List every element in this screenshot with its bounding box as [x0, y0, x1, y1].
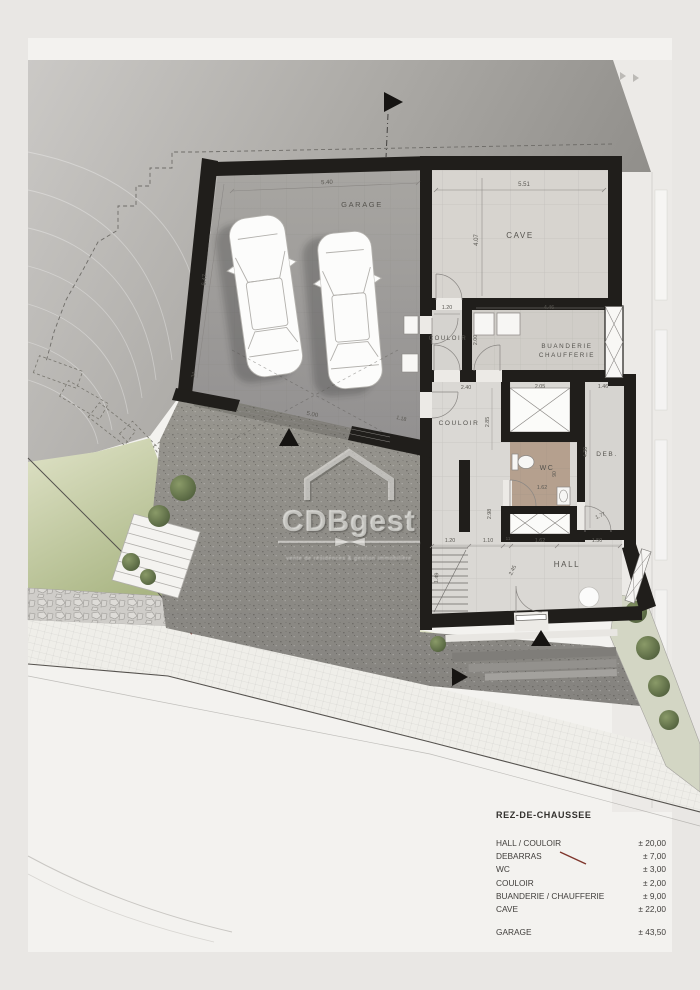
- legend-label: DEBARRAS: [496, 850, 542, 863]
- room-label-cave: CAVE: [506, 231, 534, 240]
- toilet-icon: [512, 454, 518, 470]
- wall: [420, 156, 622, 170]
- dryer-icon: [497, 313, 520, 335]
- legend-row-garage: GARAGE ± 43,50: [496, 926, 666, 939]
- tree-icon: [648, 675, 670, 697]
- window-x: [605, 306, 623, 378]
- tree-icon: [430, 636, 446, 652]
- dim-buanderie-depth: 2.00: [473, 335, 479, 345]
- wall: [501, 432, 579, 442]
- room-label-couloir2: COULOIR: [439, 420, 480, 427]
- dim-cave-width: 5.51: [518, 182, 530, 188]
- room-label-wc: WC: [540, 465, 555, 472]
- legend-value: ± 22,00: [638, 903, 666, 916]
- legend-label: COULOIR: [496, 877, 534, 890]
- legend-value: ± 7,00: [643, 850, 666, 863]
- dim-hall-2: 1.10: [483, 538, 493, 544]
- tree-icon: [636, 636, 660, 660]
- room-label-hall: HALL: [554, 560, 580, 569]
- dim-buanderie-width: 4.46: [544, 305, 554, 311]
- tree-icon: [148, 505, 170, 527]
- legend-value: ± 9,00: [643, 890, 666, 903]
- plan-sheet: GARAGE CAVE COULOIR BUANDERIE CHAUFFERIE…: [0, 0, 700, 990]
- dim-wc-width: 1.62: [537, 485, 547, 491]
- room-label-buanderie-line1: BUANDERIE: [541, 343, 592, 350]
- room-label-couloir1: COULOIR: [429, 336, 468, 342]
- dim-wc-depth: 90: [552, 471, 558, 477]
- washer-icon: [474, 313, 494, 335]
- dim-garage-depth: 6.47: [201, 273, 208, 286]
- legend-row-couloir: COULOIR ± 2,00: [496, 877, 666, 890]
- legend-label: GARAGE: [496, 926, 532, 939]
- dim-shaft-width: 2.05: [535, 384, 545, 390]
- room-label-garage: GARAGE: [341, 200, 383, 209]
- legend-row-hall-couloir: HALL / COULOIR ± 20,00: [496, 837, 666, 850]
- legend-title: REZ-DE-CHAUSSEE: [496, 810, 666, 820]
- dim-hall-3: 11: [506, 536, 511, 541]
- tree-icon: [170, 475, 196, 501]
- legend-label: WC: [496, 863, 510, 876]
- dim-garage-width: 5.40: [321, 180, 334, 186]
- dim-stair-width: 1.49: [434, 573, 441, 584]
- legend-label: BUANDERIE / CHAUFFERIE: [496, 890, 604, 903]
- entrance-door: [516, 614, 546, 620]
- legend-value: ± 3,00: [643, 863, 666, 876]
- legend-row-wc: WC ± 3,00: [496, 863, 666, 876]
- legend-label: HALL / COULOIR: [496, 837, 561, 850]
- garage-cabinet: [402, 354, 418, 372]
- dim-hall-5: 1.50: [592, 538, 602, 544]
- dim-couloir2-depth: 2.85: [485, 417, 491, 427]
- dim-deb-depth: 4.30: [583, 447, 589, 457]
- legend-row-buanderie: BUANDERIE / CHAUFFERIE ± 9,00: [496, 890, 666, 903]
- legend-value: ± 43,50: [638, 926, 666, 939]
- lower-shaft-box: [510, 512, 570, 534]
- legend-row-debarras: DEBARRAS ± 7,00: [496, 850, 666, 863]
- tree-icon: [122, 553, 140, 571]
- dim-cave-depth: 4.07: [474, 234, 480, 246]
- dim-hall-4: 1.62: [535, 538, 545, 544]
- wall: [459, 460, 470, 532]
- wall: [624, 382, 636, 550]
- tree-icon: [140, 569, 156, 585]
- legend-value: ± 20,00: [638, 837, 666, 850]
- dim-couloir2-width: 2.40: [461, 385, 471, 391]
- legend: REZ-DE-CHAUSSEE HALL / COULOIR ± 20,00 D…: [496, 810, 666, 939]
- dim-hall-left: 2.98: [487, 509, 493, 519]
- dim-couloir1-width: 1.20: [442, 305, 452, 311]
- hall-column: [579, 587, 599, 607]
- legend-label: CAVE: [496, 903, 518, 916]
- garage-cabinet: [404, 316, 418, 334]
- wall: [501, 382, 510, 440]
- tree-icon: [659, 710, 679, 730]
- room-label-buanderie-line2: CHAUFFERIE: [539, 352, 595, 359]
- wall: [501, 506, 579, 514]
- room-label-deb: DEB.: [596, 451, 618, 458]
- dim-deb-width: 1.46: [598, 384, 608, 390]
- dim-hall-1: 1.20: [445, 538, 455, 544]
- legend-value: ± 2,00: [643, 877, 666, 890]
- legend-row-cave: CAVE ± 22,00: [496, 903, 666, 916]
